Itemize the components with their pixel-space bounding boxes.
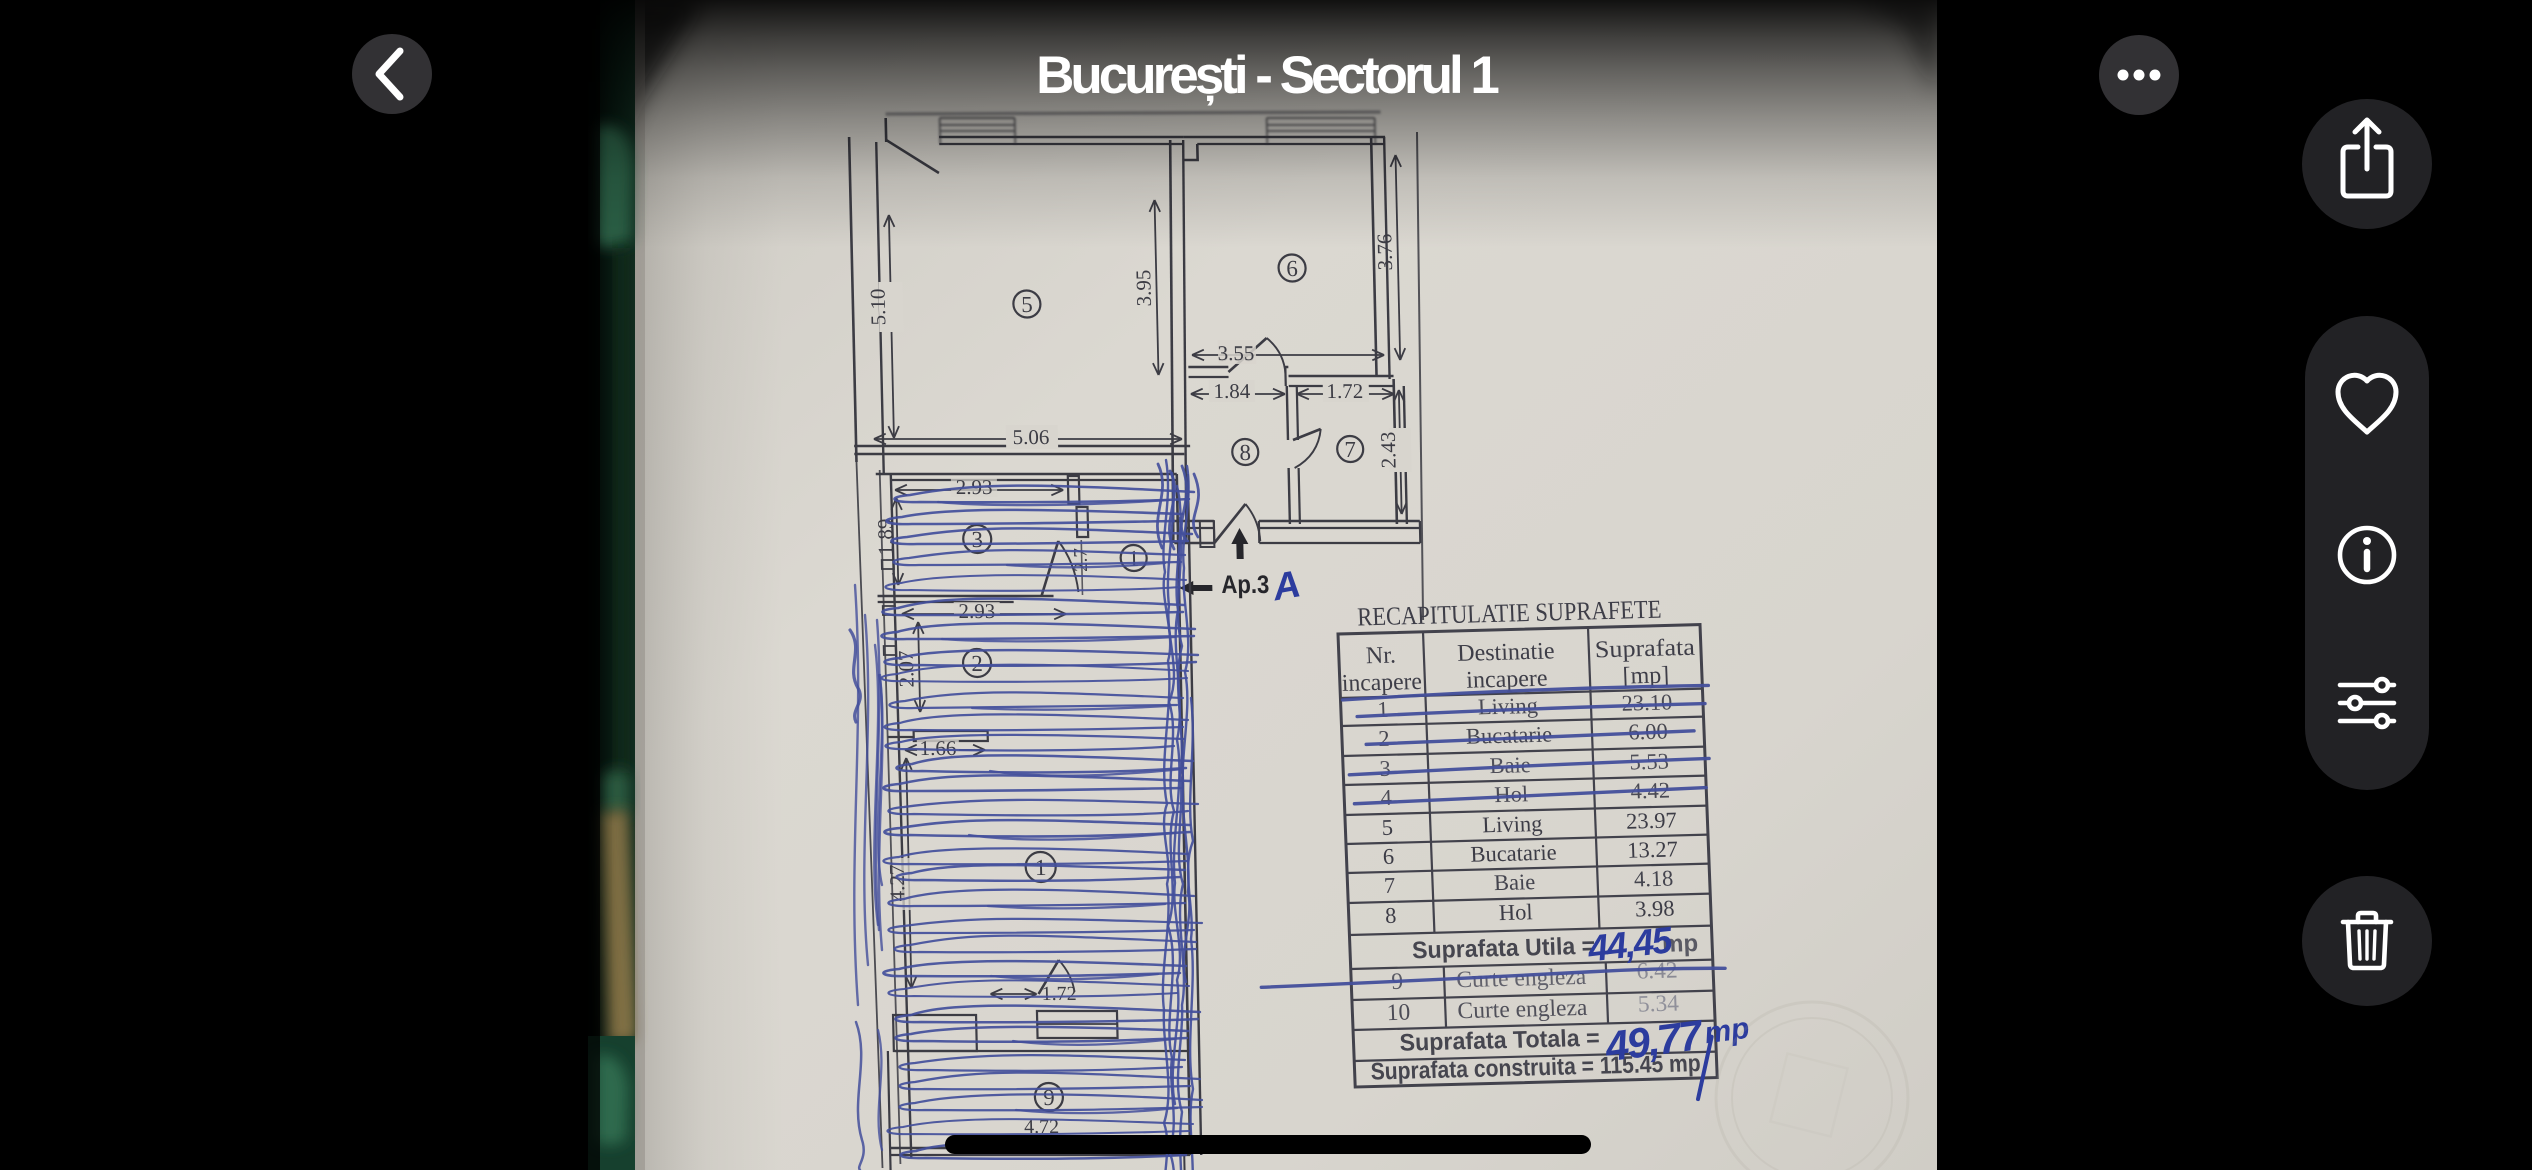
svg-text:7: 7 xyxy=(1383,873,1395,898)
svg-text:3: 3 xyxy=(1379,756,1391,781)
svg-text:5: 5 xyxy=(1381,815,1393,840)
svg-text:1: 1 xyxy=(1128,546,1140,571)
svg-text:Living: Living xyxy=(1477,693,1538,720)
svg-text:4.27: 4.27 xyxy=(885,865,910,902)
svg-text:2.93: 2.93 xyxy=(958,599,995,623)
svg-text:13.27: 13.27 xyxy=(1627,836,1679,862)
svg-text:2: 2 xyxy=(971,651,983,676)
svg-text:Living: Living xyxy=(1482,811,1543,838)
svg-text:10: 10 xyxy=(1386,1000,1410,1027)
svg-text:Nr.: Nr. xyxy=(1365,643,1396,670)
svg-text:Baie: Baie xyxy=(1494,869,1536,895)
svg-text:3.98: 3.98 xyxy=(1635,896,1675,922)
svg-text:7: 7 xyxy=(1344,437,1356,462)
svg-text:6: 6 xyxy=(1382,844,1394,869)
svg-text:4: 4 xyxy=(1380,785,1392,810)
svg-text:Suprafata Totala =: Suprafata Totala = xyxy=(1399,1025,1600,1057)
svg-text:1.72: 1.72 xyxy=(1041,983,1076,1005)
svg-text:5: 5 xyxy=(1021,292,1033,317)
svg-text:6: 6 xyxy=(1286,256,1298,281)
svg-text:23.97: 23.97 xyxy=(1626,807,1678,833)
svg-text:Destinatie: Destinatie xyxy=(1457,638,1555,667)
svg-text:8: 8 xyxy=(1239,440,1251,465)
svg-text:1.84: 1.84 xyxy=(1213,379,1251,403)
svg-text:Bucatarie: Bucatarie xyxy=(1470,840,1557,867)
svg-text:Suprafata Utila =: Suprafata Utila = xyxy=(1412,933,1596,965)
svg-text:23.10: 23.10 xyxy=(1621,689,1673,715)
svg-text:5.06: 5.06 xyxy=(1012,425,1049,449)
svg-text:Curte engleza: Curte engleza xyxy=(1457,995,1588,1024)
svg-text:Ap.3: Ap.3 xyxy=(1221,571,1270,599)
svg-text:Bucatarie: Bucatarie xyxy=(1465,722,1552,749)
svg-text:Suprafata: Suprafata xyxy=(1594,635,1695,664)
svg-text:2.43: 2.43 xyxy=(1376,432,1401,469)
svg-text:3.95: 3.95 xyxy=(1131,270,1156,307)
svg-text:Hol: Hol xyxy=(1494,781,1529,807)
svg-text:8: 8 xyxy=(1385,903,1397,928)
svg-text:1: 1 xyxy=(1035,855,1047,880)
svg-text:4.18: 4.18 xyxy=(1633,866,1673,892)
svg-text:incapere: incapere xyxy=(1341,669,1422,697)
svg-text:1: 1 xyxy=(1377,697,1389,722)
svg-text:5.10: 5.10 xyxy=(866,289,891,326)
svg-text:3.55: 3.55 xyxy=(1217,341,1254,365)
svg-text:Hol: Hol xyxy=(1498,899,1533,925)
svg-text:2: 2 xyxy=(1378,726,1390,751)
svg-text:1.72: 1.72 xyxy=(1326,379,1363,403)
